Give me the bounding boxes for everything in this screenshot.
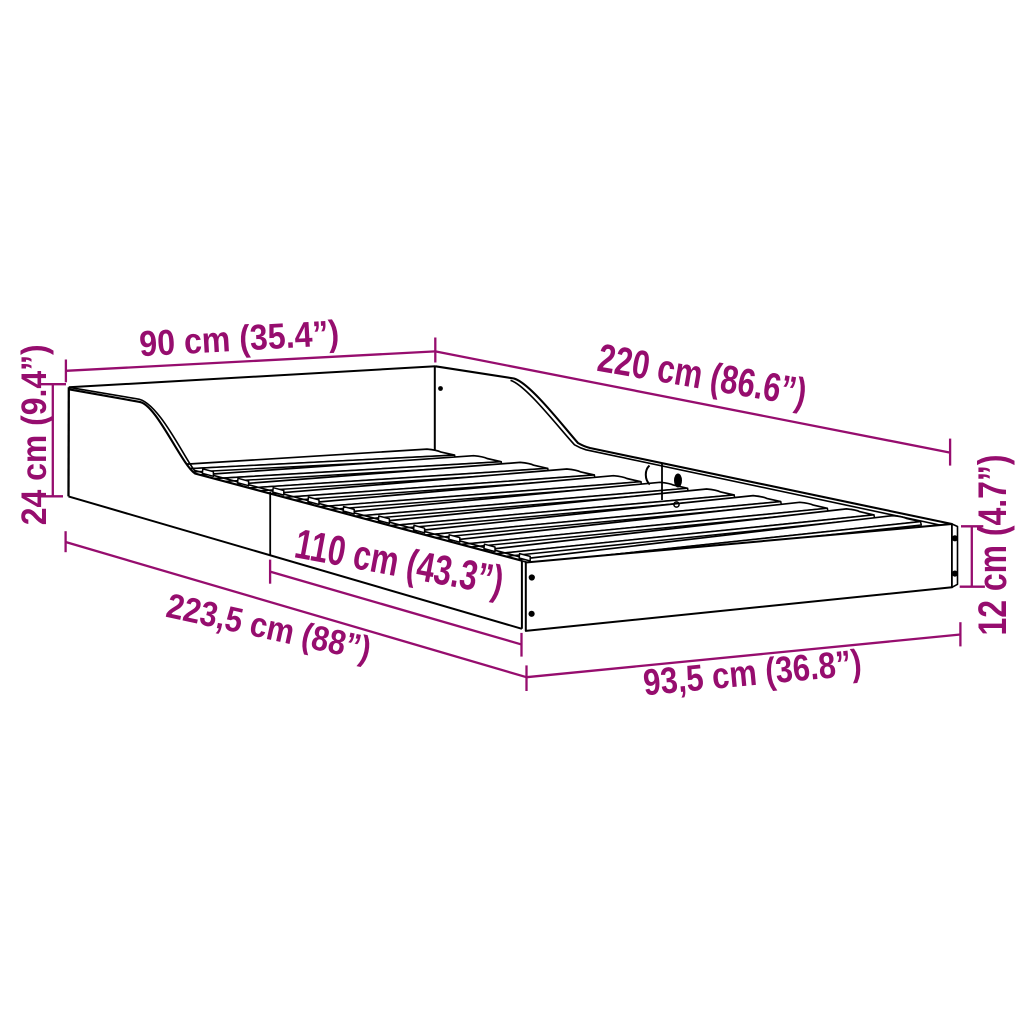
- svg-text:24 cm (9.4”): 24 cm (9.4”): [15, 344, 54, 525]
- svg-text:12 cm (4.7”): 12 cm (4.7”): [971, 455, 1015, 636]
